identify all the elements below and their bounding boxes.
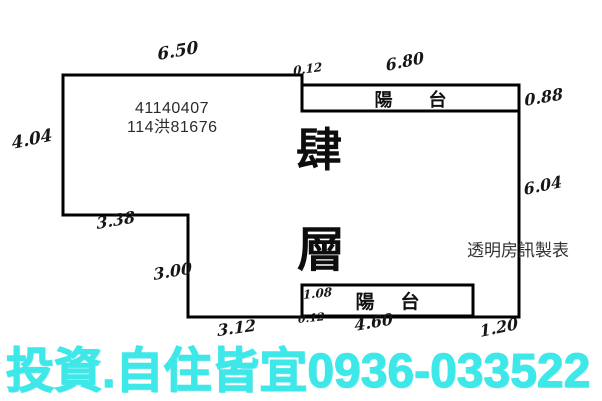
top-balcony-label: 陽台 bbox=[302, 85, 519, 112]
floor-title-char-2: 層 bbox=[297, 226, 345, 274]
floor-plan-page: 41140407 114洪81676 肆 層 陽台 陽台 透明房訊製表 6.50… bbox=[0, 0, 602, 401]
registration-number-text: 114洪81676 bbox=[127, 119, 218, 137]
case-number-text: 41140407 bbox=[135, 100, 209, 118]
bottom-balcony-label-text: 陽台 bbox=[355, 287, 445, 314]
top-balcony-label-text: 陽台 bbox=[375, 86, 483, 112]
floor-title-char-1: 肆 bbox=[296, 127, 342, 173]
ad-banner-text: 投資.自住皆宜0936-033522 bbox=[6, 330, 602, 401]
dim-bottom-step: 0.12 bbox=[298, 311, 325, 325]
dim-bottom-balcony-depth: 1.08 bbox=[303, 286, 332, 301]
maker-credit-text: 透明房訊製表 bbox=[467, 236, 569, 261]
